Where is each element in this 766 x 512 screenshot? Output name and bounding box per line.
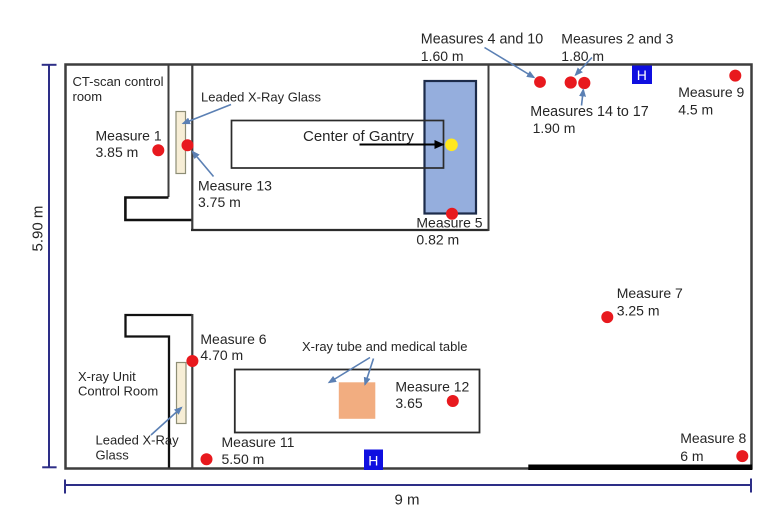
svg-text:Measure 13: Measure 13 bbox=[198, 178, 272, 194]
svg-text:4.70 m: 4.70 m bbox=[200, 347, 243, 363]
svg-text:Measures 4 and 10: Measures 4 and 10 bbox=[421, 31, 543, 47]
svg-text:0.82 m: 0.82 m bbox=[416, 232, 459, 248]
svg-text:Measure 9: Measure 9 bbox=[678, 84, 744, 100]
svg-text:6 m: 6 m bbox=[680, 448, 703, 464]
svg-text:Glass: Glass bbox=[96, 448, 130, 463]
svg-text:9 m: 9 m bbox=[395, 492, 420, 509]
svg-text:1.90 m: 1.90 m bbox=[533, 120, 576, 136]
svg-text:Leaded X-Ray: Leaded X-Ray bbox=[96, 433, 180, 448]
svg-text:3.65: 3.65 bbox=[395, 395, 422, 411]
svg-text:X-ray Unit: X-ray Unit bbox=[78, 369, 136, 384]
svg-text:Measure 1: Measure 1 bbox=[96, 127, 162, 143]
svg-text:H: H bbox=[368, 453, 378, 469]
svg-text:Measure 11: Measure 11 bbox=[222, 434, 295, 450]
svg-text:Measures 14 to 17: Measures 14 to 17 bbox=[530, 104, 648, 120]
svg-text:1.80 m: 1.80 m bbox=[561, 48, 604, 64]
svg-text:Control Room: Control Room bbox=[78, 384, 158, 399]
svg-text:room: room bbox=[73, 89, 103, 104]
svg-text:X-ray tube and medical table: X-ray tube and medical table bbox=[302, 339, 467, 354]
svg-text:Measure 12: Measure 12 bbox=[395, 379, 469, 395]
svg-text:Measure 6: Measure 6 bbox=[200, 331, 266, 347]
svg-text:4.5 m: 4.5 m bbox=[678, 101, 713, 117]
svg-text:Measure 8: Measure 8 bbox=[680, 430, 746, 446]
svg-text:Measure 5: Measure 5 bbox=[416, 214, 482, 230]
svg-text:5.50 m: 5.50 m bbox=[222, 451, 265, 467]
svg-text:Measures 2 and 3: Measures 2 and 3 bbox=[561, 31, 673, 47]
svg-text:3.85 m: 3.85 m bbox=[96, 144, 139, 160]
svg-text:1.60 m: 1.60 m bbox=[421, 48, 464, 64]
svg-text:CT-scan control: CT-scan control bbox=[73, 74, 164, 89]
svg-text:3.25 m: 3.25 m bbox=[617, 302, 660, 318]
svg-text:3.75 m: 3.75 m bbox=[198, 194, 241, 210]
svg-text:Measure 7: Measure 7 bbox=[617, 285, 683, 301]
svg-text:5.90 m: 5.90 m bbox=[30, 206, 47, 252]
svg-text:Leaded X-Ray Glass: Leaded X-Ray Glass bbox=[201, 90, 321, 105]
svg-text:H: H bbox=[637, 67, 647, 83]
svg-text:Center of Gantry: Center of Gantry bbox=[303, 128, 414, 145]
